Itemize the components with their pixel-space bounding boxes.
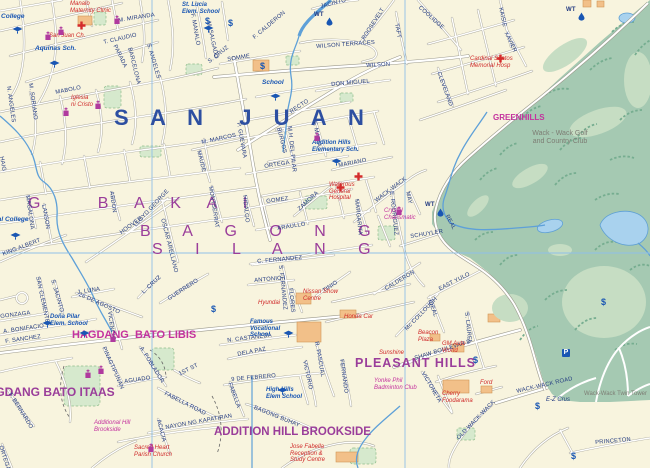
street-label: COOLIDGE	[417, 5, 445, 31]
poi-label: Aquinas Sch.	[35, 45, 76, 52]
street-label: T. CLAUDIO	[103, 32, 137, 46]
bank-icon: $	[228, 13, 233, 31]
church-icon	[94, 97, 102, 115]
street-label: WILSON TERRACES	[316, 40, 375, 50]
bank-icon: $	[260, 56, 265, 74]
poi-label: Wack - Wack Golf and Country Club	[512, 130, 608, 145]
street-label: SOMME	[227, 53, 251, 63]
street-label: N. ANGELES	[5, 86, 16, 123]
hospital-cross-icon	[354, 168, 363, 186]
parking-icon: P	[562, 349, 570, 357]
poi-label: Honda Car	[344, 314, 373, 321]
street-label: S. JACINTO	[49, 279, 64, 313]
street-label: MAY	[404, 191, 413, 205]
water-tank-icon	[326, 13, 333, 31]
street-label: VICTONETA	[420, 371, 443, 404]
church-icon	[109, 330, 117, 348]
map-canvas: S A N J U A NG B A K A IB A G O N GS I L…	[0, 0, 650, 468]
street-label: GONZAGA	[0, 310, 31, 320]
street-label: F. CALDERON	[252, 10, 287, 41]
district-label: S I L A N G	[152, 242, 385, 259]
school-icon	[331, 153, 342, 171]
street-label: FABELLA ROAD	[163, 391, 206, 417]
water-tank-icon	[578, 8, 585, 26]
church-icon	[57, 23, 65, 41]
school-icon	[277, 382, 288, 400]
church-icon	[147, 440, 155, 458]
street-label: KAISIE	[497, 7, 507, 28]
poi-label: School	[262, 79, 284, 86]
street-label: R. PASCUAL	[313, 341, 325, 378]
district-label: ADDITION HILL BROOKSIDE	[214, 426, 371, 438]
school-icon	[42, 315, 53, 333]
district-label: HAGDANG BATO ITAAS	[0, 386, 115, 399]
poi-label: Iglesia ni Cristo	[71, 95, 93, 108]
poi-label: St. Lucia Elem. School	[182, 2, 220, 15]
street-label: GOMEZ	[266, 196, 289, 205]
poi-label: Yonke Phil Badminton Club	[374, 378, 417, 391]
street-label: 9 DE FEBRERO	[231, 373, 276, 383]
poi-label: Beacon Plaza	[418, 330, 438, 343]
hospital-cross-icon	[77, 17, 86, 35]
street-label: ACACIA	[155, 419, 166, 443]
church-icon	[113, 12, 121, 30]
poi-label: Hyundai	[258, 300, 280, 307]
street-label: OLD WACK-WACK	[456, 399, 497, 441]
street-label: WT	[314, 12, 324, 18]
street-label: ROOSEVELT	[361, 7, 386, 41]
poi-label: Wack-Wack Twin Tower	[584, 391, 647, 398]
bank-icon: $	[571, 446, 576, 464]
district-label: G B A K A I	[28, 196, 258, 213]
school-icon	[79, 325, 90, 343]
school-icon	[12, 21, 23, 39]
street-label: F. SANCHEZ	[5, 334, 41, 345]
street-label: VICTORIO	[301, 360, 313, 390]
school-icon	[270, 88, 281, 106]
church-icon	[395, 203, 403, 221]
hospital-cross-icon	[496, 50, 505, 68]
bank-icon: $	[205, 11, 210, 29]
poi-label: Famous Vocational School	[250, 319, 280, 339]
street-label: ZAMORA	[297, 190, 320, 212]
street-label: EAST YULO	[438, 272, 471, 293]
street-label: F. MANALO	[189, 13, 201, 46]
street-label: L. CRUZ	[141, 275, 163, 296]
street-label: CLEVELAND	[435, 71, 453, 107]
poi-label: Jose Fabella Reception & Study Centre	[290, 444, 325, 464]
street-label: TAFT	[393, 23, 402, 39]
street-label: DELA PAZ	[237, 346, 267, 358]
water-tank-icon	[437, 204, 444, 222]
street-label: KING ALBERT	[2, 238, 42, 258]
church-icon	[84, 366, 92, 384]
church-icon	[97, 362, 105, 380]
street-label: CALDERON	[384, 270, 416, 293]
street-label: S. ANGELES	[145, 43, 161, 79]
street-label: WT	[425, 202, 435, 208]
poi-label: Cherry Foodarama	[442, 391, 473, 404]
street-label: SCHUYLER	[410, 229, 444, 240]
poi-label: Rizal College	[0, 216, 28, 223]
street-label: GUERRERO	[167, 278, 200, 302]
street-label: 1ST ST	[178, 363, 199, 378]
bank-icon: $	[535, 396, 540, 414]
church-icon	[44, 28, 52, 46]
poi-label: E-Z Crus	[546, 397, 570, 404]
district-label: HAGDANG BATO LIBIS	[72, 330, 196, 342]
street-label: WT	[566, 7, 576, 13]
street-label: JACINTO	[320, 0, 347, 10]
street-label: S. LAUREL	[463, 312, 472, 344]
street-label: 26 DE AGOSTO	[78, 292, 121, 316]
street-label: M. SORIANO	[27, 83, 38, 120]
street-label: FLORES	[287, 288, 296, 313]
street-label: REAL	[444, 214, 457, 231]
school-icon	[10, 227, 21, 245]
church-icon	[313, 129, 321, 147]
street-label: M. MARCOS	[201, 133, 237, 146]
district-label: GREENHILLS	[493, 114, 545, 122]
bank-icon: $	[473, 350, 478, 368]
street-label: BARCELONA	[126, 47, 141, 85]
poi-label: GM Auto World	[442, 341, 465, 354]
school-icon	[49, 55, 60, 73]
poi-label: Nissan Show Centre	[303, 289, 338, 302]
street-label: PRINCETON	[595, 437, 631, 446]
street-label: ORTEGA	[0, 445, 11, 468]
district-label: S A N J U A N	[114, 106, 372, 129]
street-label: DON MIGUEL	[331, 79, 370, 88]
street-label: FERNANDO	[338, 359, 349, 394]
street-label: WACK-WACK ROAD	[516, 376, 573, 395]
hospital-cross-icon	[336, 179, 345, 197]
street-label: ORTEGA	[264, 160, 290, 170]
map-labels: S A N J U A NG B A K A IB A G O N GS I L…	[0, 0, 650, 468]
poi-label: Cardinal Santos Memorial Hosp	[470, 56, 513, 69]
poi-label: Dominican College	[0, 13, 25, 20]
poi-label: Additional Hill Brookside	[94, 420, 130, 433]
poi-label: Ford	[480, 380, 492, 387]
street-label: WILSON	[366, 62, 390, 69]
poi-label: Sunshine	[379, 350, 404, 357]
street-label: AGUADO	[124, 375, 151, 385]
street-label: MAUDE	[195, 150, 206, 173]
church-icon	[62, 104, 70, 122]
bank-icon: $	[211, 299, 216, 317]
street-label: HAIG	[0, 156, 7, 172]
street-label: M. MIRANDA	[118, 12, 155, 24]
bank-icon: $	[601, 292, 606, 310]
street-label: FABELLA	[226, 382, 241, 409]
poi-label: Manalo Maternity Clinic	[70, 1, 111, 14]
district-label: B A G O N G	[140, 224, 385, 241]
school-icon	[283, 325, 294, 343]
